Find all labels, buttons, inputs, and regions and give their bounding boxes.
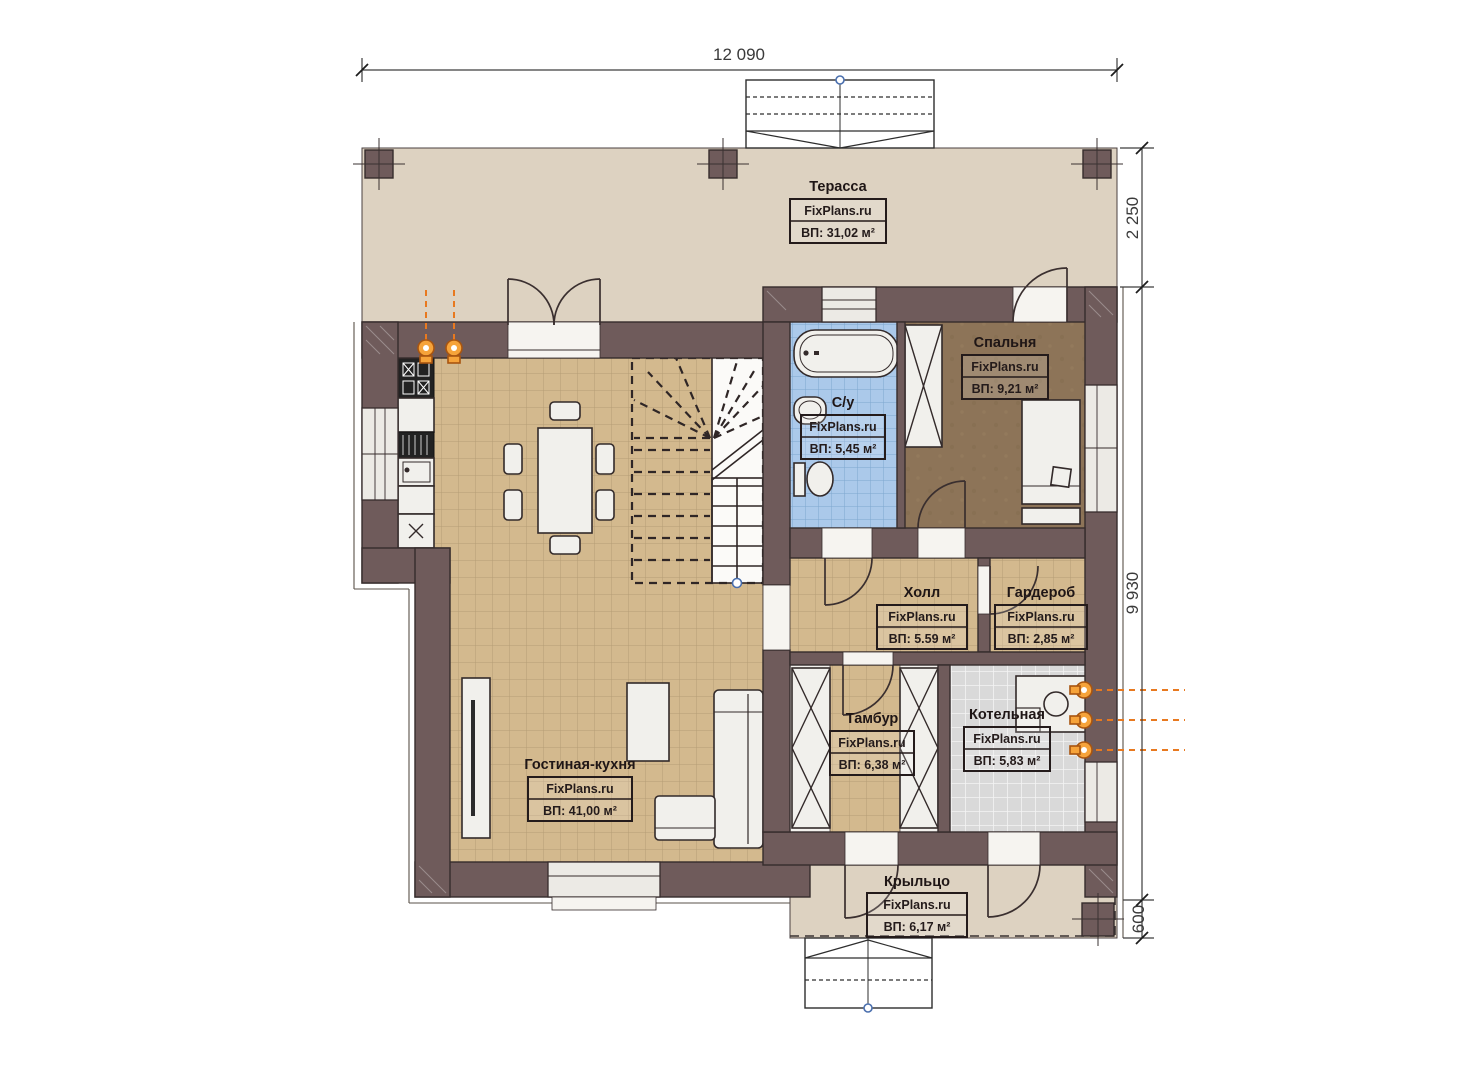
window-sill xyxy=(552,897,656,910)
closet xyxy=(792,668,830,828)
room-area: ВП: 2,85 м² xyxy=(1008,632,1075,646)
window xyxy=(1085,762,1117,822)
toilet-tank xyxy=(794,463,805,496)
bedroom-door-opening xyxy=(918,528,965,558)
chair xyxy=(550,536,580,554)
gas-connection-icon xyxy=(1070,712,1185,728)
room-name: С/у xyxy=(832,395,855,411)
coffee-table xyxy=(627,683,669,761)
dimension-top: 12 090 xyxy=(356,45,1123,82)
dining-table xyxy=(538,428,592,533)
porch-entry-stairs xyxy=(805,938,932,1012)
window xyxy=(822,287,876,322)
tv-stand xyxy=(462,678,490,838)
room-name: Холл xyxy=(904,585,940,601)
bathroom-door-opening xyxy=(822,528,872,558)
chair xyxy=(504,490,522,520)
watermark: FixPlans.ru xyxy=(888,610,955,624)
floor-plan-drawing: Терасса FixPlans.ru ВП: 31,02 м² Спальня… xyxy=(0,0,1473,1080)
room-area: ВП: 5.59 м² xyxy=(889,632,956,646)
watermark: FixPlans.ru xyxy=(546,782,613,796)
room-name: Гардероб xyxy=(1007,585,1076,601)
counter-2 xyxy=(398,486,434,514)
watermark: FixPlans.ru xyxy=(809,420,876,434)
chair xyxy=(550,402,580,420)
room-label-living: Гостиная-кухня FixPlans.ru ВП: 41,00 м² xyxy=(524,757,635,821)
room-label-wardrobe: Гардероб FixPlans.ru ВП: 2,85 м² xyxy=(995,585,1087,649)
bed xyxy=(1022,400,1080,504)
tv xyxy=(471,700,475,816)
sofa-chaise xyxy=(655,796,715,840)
room-area: ВП: 6,17 м² xyxy=(884,920,951,934)
floor-plan-page: Терасса FixPlans.ru ВП: 31,02 м² Спальня… xyxy=(0,0,1473,1080)
room-name: Гостиная-кухня xyxy=(524,757,635,773)
pillow xyxy=(1051,467,1071,487)
room-name: Терасса xyxy=(809,179,867,195)
watermark: FixPlans.ru xyxy=(883,898,950,912)
watermark: FixPlans.ru xyxy=(838,736,905,750)
room-area: ВП: 6,38 м² xyxy=(839,758,906,772)
chair xyxy=(596,444,614,474)
hall-passage xyxy=(763,585,790,650)
window xyxy=(548,862,660,897)
watermark: FixPlans.ru xyxy=(973,732,1040,746)
watermark: FixPlans.ru xyxy=(971,360,1038,374)
room-area: ВП: 41,00 м² xyxy=(543,804,617,818)
room-label-bedroom: Спальня FixPlans.ru ВП: 9,21 м² xyxy=(962,335,1048,399)
vestibule-door-opening xyxy=(843,652,893,665)
room-area: ВП: 5,45 м² xyxy=(810,442,877,456)
sofa xyxy=(714,690,763,848)
window xyxy=(1085,385,1117,512)
wardrobe-door-opening xyxy=(978,566,990,614)
terrace-door-opening xyxy=(508,322,600,358)
bed-bench xyxy=(1022,508,1080,524)
kitchen-counter-run xyxy=(398,358,434,548)
dimension-terrace-depth: 2 250 xyxy=(1123,197,1142,240)
room-name: Котельная xyxy=(969,707,1045,723)
chair xyxy=(596,490,614,520)
gas-connection-icon xyxy=(1070,742,1185,758)
dimension-porch-depth: 600 xyxy=(1129,905,1148,933)
watermark: FixPlans.ru xyxy=(804,204,871,218)
room-area: ВП: 9,21 м² xyxy=(972,382,1039,396)
room-name: Спальня xyxy=(974,335,1037,351)
toilet xyxy=(807,462,833,496)
dimension-house-depth: 9 930 xyxy=(1123,572,1142,615)
watermark: FixPlans.ru xyxy=(1007,610,1074,624)
room-label-boiler: Котельная FixPlans.ru ВП: 5,83 м² xyxy=(964,707,1050,771)
room-area: ВП: 5,83 м² xyxy=(974,754,1041,768)
room-area: ВП: 31,02 м² xyxy=(801,226,875,240)
porch-door-opening xyxy=(845,832,898,865)
counter xyxy=(398,398,434,432)
room-name: Тамбур xyxy=(846,711,899,727)
chair xyxy=(504,444,522,474)
dimension-width-total: 12 090 xyxy=(713,45,765,64)
dimension-right: 2 250 9 930 600 xyxy=(1120,142,1154,944)
radiator-valve-icon xyxy=(446,340,462,363)
room-name: Крыльцо xyxy=(884,874,950,890)
porch-door-opening xyxy=(988,832,1040,865)
gas-connection-icon xyxy=(1070,682,1185,698)
radiator-valve-icon xyxy=(418,340,434,363)
terrace-entry-stairs xyxy=(746,76,934,148)
